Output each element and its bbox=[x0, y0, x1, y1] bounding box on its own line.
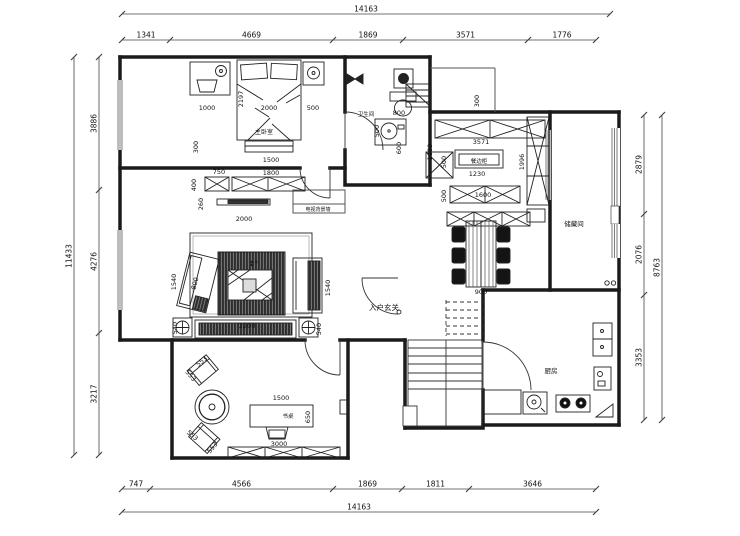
dimension-label: 1869 bbox=[358, 31, 377, 40]
chair-icon bbox=[497, 227, 510, 242]
dimension-label: 2076 bbox=[635, 245, 644, 264]
dimension-label: 1341 bbox=[136, 31, 155, 40]
room-label: 主卧室 bbox=[255, 128, 273, 136]
dimension-chain: 8763 bbox=[653, 112, 666, 423]
bedroom-door bbox=[300, 168, 330, 198]
dimension-label: 1776 bbox=[552, 31, 571, 40]
room-label: 电视背景墙 bbox=[305, 206, 330, 213]
fridge-icon bbox=[593, 323, 612, 356]
door-hardware-icon bbox=[611, 281, 615, 285]
parapet-line bbox=[430, 68, 495, 112]
corridor-cabinets bbox=[205, 177, 305, 205]
dresser-icon bbox=[190, 62, 230, 95]
dimension-label: 900 bbox=[475, 288, 487, 296]
chair-icon bbox=[497, 269, 510, 284]
dimension-label: 1000 bbox=[199, 104, 216, 112]
dimension-label: 553 bbox=[185, 428, 200, 442]
dimension-label: 1500 bbox=[263, 156, 280, 164]
dimension-label: 8763 bbox=[653, 258, 662, 277]
chair-icon bbox=[452, 227, 465, 242]
stove-icon bbox=[556, 395, 590, 412]
dimension-label: 300 bbox=[473, 95, 481, 107]
wall-lamp-icon bbox=[347, 74, 363, 84]
water-heater-icon bbox=[394, 69, 413, 88]
dimension-label: 4669 bbox=[242, 31, 261, 40]
dimension-label: 300 bbox=[192, 141, 200, 153]
counter-icon bbox=[484, 390, 521, 414]
floor-plan-svg: 1341466918693571177614163747456618691811… bbox=[0, 0, 740, 536]
dimension-label: 4276 bbox=[90, 252, 99, 271]
dimension-label: 1009 bbox=[426, 144, 434, 161]
wall-kitchen-bottom bbox=[405, 425, 619, 428]
study-door bbox=[305, 340, 340, 375]
dimension-label: 1540 bbox=[170, 274, 178, 291]
dimension-label: 750 bbox=[213, 168, 225, 176]
dimension-label: 500 bbox=[373, 125, 381, 137]
sofa-right-icon bbox=[293, 258, 322, 313]
dimension-label: 14163 bbox=[354, 5, 378, 14]
door-hardware-icon bbox=[605, 281, 609, 285]
chair-icon bbox=[452, 248, 465, 263]
dimension-label: 2200 bbox=[239, 322, 256, 330]
nightstand-lamp-icon bbox=[308, 67, 320, 79]
dimension-label: 500 bbox=[440, 190, 448, 202]
corner-shelf-icon bbox=[596, 404, 613, 417]
dimension-label: 4566 bbox=[232, 480, 251, 489]
dimension-label: 3000 bbox=[271, 440, 288, 448]
dimension-chain: 7474566186918113646 bbox=[119, 480, 599, 493]
window-left-living bbox=[117, 230, 123, 310]
dimension-label: 1500 bbox=[273, 394, 290, 402]
dimension-chain: 14163 bbox=[119, 503, 599, 516]
dimension-label: 3886 bbox=[90, 114, 99, 133]
dresser-lamp-icon bbox=[216, 66, 227, 77]
dimension-chains: 1341466918693571177614163747456618691811… bbox=[65, 5, 666, 516]
dimension-chain: 11433 bbox=[65, 54, 78, 458]
dimension-label: 2000 bbox=[236, 215, 253, 223]
kitchen-fixtures bbox=[484, 281, 616, 417]
kitchen-door bbox=[483, 342, 531, 390]
appliance-icon bbox=[594, 367, 611, 390]
dimension-label: 500 bbox=[307, 104, 319, 112]
dimension-label: 1869 bbox=[358, 480, 377, 489]
floor-plan-page: 1341466918693571177614163747456618691811… bbox=[0, 0, 740, 536]
room-label: 入户玄关 bbox=[369, 302, 399, 312]
kitchen-sink-icon bbox=[523, 392, 547, 414]
dimension-label: 14163 bbox=[347, 503, 371, 512]
pillow-icon bbox=[271, 63, 298, 79]
stair-treads bbox=[403, 340, 482, 426]
dining-set bbox=[452, 221, 510, 287]
window-storage-left bbox=[545, 130, 551, 200]
room-labels: 主卧室卫生间电视背景墙入户玄关餐边柜储藏间厨房书桌 bbox=[255, 110, 584, 420]
room-label: 餐边柜 bbox=[471, 157, 488, 165]
desk-chair-icon bbox=[266, 427, 288, 439]
dimension-label: 600 bbox=[395, 142, 403, 154]
thin-lines bbox=[293, 68, 495, 213]
dimension-label: 260 bbox=[197, 198, 205, 210]
dimension-label: 800 bbox=[190, 276, 201, 290]
dimension-label: 553 bbox=[194, 354, 209, 368]
dimension-label: 2197 bbox=[237, 91, 245, 108]
dimension-label: 1540 bbox=[324, 280, 332, 297]
dimension-label: 1996 bbox=[518, 154, 526, 171]
console-shelf-icon bbox=[217, 199, 270, 205]
dimension-label: 1600 bbox=[475, 191, 492, 199]
staircase bbox=[403, 300, 484, 426]
dimension-label: 3217 bbox=[90, 384, 99, 403]
dimension-label: 2879 bbox=[635, 155, 644, 174]
dimension-label: 1800 bbox=[263, 169, 280, 177]
chair-icon bbox=[452, 269, 465, 284]
dimension-label: 1230 bbox=[469, 170, 486, 178]
dimension-chain: 388642763217 bbox=[90, 54, 103, 458]
dimension-label: 3571 bbox=[456, 31, 475, 40]
dimension-label: 3571 bbox=[473, 138, 490, 146]
room-label: 书桌 bbox=[282, 412, 294, 420]
bedroom-tv-cabinet-icon bbox=[245, 141, 293, 152]
wardrobe-icon bbox=[232, 177, 305, 191]
window-storage-right bbox=[611, 128, 620, 258]
dimension-label: 500 bbox=[440, 156, 448, 168]
dimension-label: 540 bbox=[315, 323, 323, 335]
dimension-label: 747 bbox=[129, 480, 144, 489]
dimension-label: 3646 bbox=[523, 480, 542, 489]
stool-icon bbox=[197, 80, 217, 92]
dimension-chain: 14163 bbox=[119, 5, 613, 18]
pantry-cabinets bbox=[435, 117, 549, 226]
chair-icon bbox=[497, 248, 510, 263]
dimension-label: 1811 bbox=[426, 480, 445, 489]
wall-bathroom bbox=[345, 57, 430, 185]
dimension-label: 3353 bbox=[635, 348, 644, 367]
room-label: 储藏间 bbox=[564, 219, 584, 228]
room-label: 厨房 bbox=[545, 366, 558, 375]
window-left-bedroom bbox=[117, 80, 123, 150]
dimension-chain: 13414669186935711776 bbox=[119, 31, 599, 44]
dimension-label: 11433 bbox=[65, 244, 74, 268]
dimension-chain: 287920763353 bbox=[635, 112, 648, 423]
pillow-icon bbox=[241, 63, 268, 80]
fan-table-icon bbox=[195, 390, 229, 424]
dimension-label: 800 bbox=[393, 109, 405, 117]
wardrobe-icon bbox=[205, 177, 229, 191]
dimension-label: 540 bbox=[171, 322, 179, 334]
dimension-label: 2000 bbox=[261, 104, 278, 112]
stair-projection-dashed bbox=[446, 300, 484, 336]
dimension-label: 650 bbox=[304, 411, 312, 423]
nightstand-icon bbox=[303, 62, 324, 85]
dimension-label: 400 bbox=[190, 179, 198, 191]
room-label: 卫生间 bbox=[358, 110, 375, 118]
